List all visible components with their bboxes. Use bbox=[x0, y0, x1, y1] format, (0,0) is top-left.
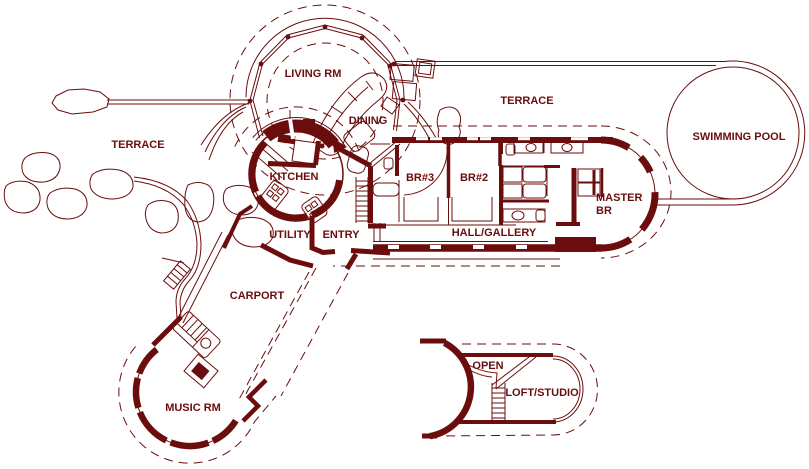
svg-text:LIVING RM: LIVING RM bbox=[285, 68, 342, 80]
svg-text:SWIMMING POOL: SWIMMING POOL bbox=[693, 131, 786, 143]
svg-text:MASTER: MASTER bbox=[596, 192, 643, 204]
svg-text:KITCHEN: KITCHEN bbox=[270, 171, 319, 183]
svg-text:TERRACE: TERRACE bbox=[500, 95, 553, 107]
svg-text:UTILITY: UTILITY bbox=[269, 229, 311, 241]
svg-text:HALL/GALLERY: HALL/GALLERY bbox=[452, 227, 537, 239]
svg-text:ENTRY: ENTRY bbox=[323, 229, 361, 241]
svg-text:BR#3: BR#3 bbox=[406, 172, 434, 184]
svg-text:CARPORT: CARPORT bbox=[230, 290, 285, 302]
svg-text:OPEN: OPEN bbox=[472, 360, 503, 372]
svg-text:DINING: DINING bbox=[349, 115, 388, 127]
svg-text:TERRACE: TERRACE bbox=[111, 139, 164, 151]
svg-text:MUSIC RM: MUSIC RM bbox=[165, 402, 221, 414]
svg-text:BR: BR bbox=[596, 205, 612, 217]
svg-text:BR#2: BR#2 bbox=[460, 172, 488, 184]
svg-text:LOFT/STUDIO: LOFT/STUDIO bbox=[505, 387, 579, 399]
